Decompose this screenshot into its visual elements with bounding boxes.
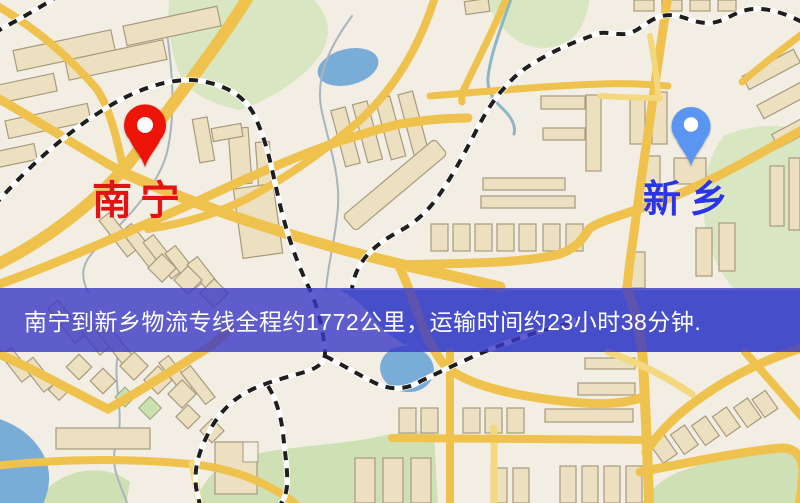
map-viewport[interactable]: 南宁 新乡 南宁到新乡物流专线全程约1772公里，运输时间约23小时38分钟. xyxy=(0,0,800,503)
map-canvas[interactable] xyxy=(0,0,800,503)
route-info-text: 南宁到新乡物流专线全程约1772公里，运输时间约23小时38分钟. xyxy=(0,303,701,337)
origin-pin-icon[interactable] xyxy=(122,103,168,169)
origin-city-label: 南宁 xyxy=(92,181,188,221)
destination-pin-hole xyxy=(684,117,698,131)
origin-pin-hole xyxy=(137,117,153,133)
route-info-banner: 南宁到新乡物流专线全程约1772公里，运输时间约23小时38分钟. xyxy=(0,288,800,352)
destination-pin-icon[interactable] xyxy=(670,104,712,168)
destination-city-label: 新乡 xyxy=(643,181,737,219)
